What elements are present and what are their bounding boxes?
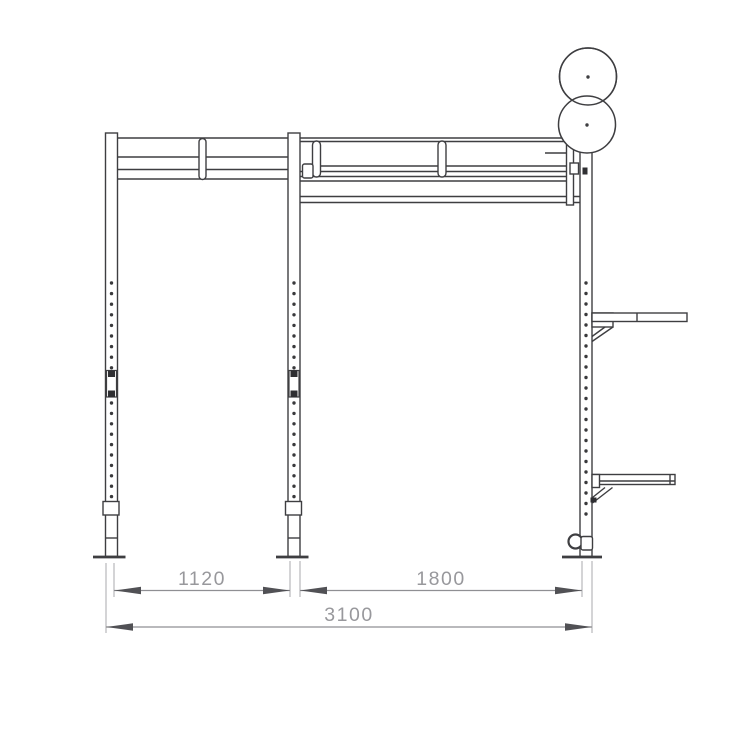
adjustment-hole [110, 313, 113, 316]
adjustment-hole [292, 422, 295, 425]
adjustment-hole [110, 495, 113, 498]
adjustment-hole [292, 313, 295, 316]
adjustment-hole [292, 345, 295, 348]
adjustment-hole [110, 366, 113, 369]
upper-shelf [592, 313, 687, 342]
adjustment-hole [584, 323, 587, 326]
adjustment-hole [292, 453, 295, 456]
beam-end-bracket-cap [570, 163, 579, 174]
adjustment-hole [584, 334, 587, 337]
adjustment-hole [584, 418, 587, 421]
adjustment-hole [584, 355, 587, 358]
adjustment-hole [584, 470, 587, 473]
adjustment-hole [292, 412, 295, 415]
adjustment-hole [292, 433, 295, 436]
adjustment-hole [110, 433, 113, 436]
ball-targets [559, 48, 617, 153]
adjustment-hole [584, 460, 587, 463]
adjustment-hole [584, 428, 587, 431]
adjustment-hole [110, 324, 113, 327]
adjustment-hole [292, 366, 295, 369]
right-bay-muscleup-bar [300, 166, 571, 181]
adjustment-hole [110, 443, 113, 446]
adjustment-hole [110, 345, 113, 348]
drawing-canvas: 1120 1800 3100 [0, 0, 750, 749]
bar-clamp-mid-post [303, 164, 314, 178]
adjustment-hole [292, 324, 295, 327]
adjustment-hole [584, 376, 587, 379]
adjustment-hole [110, 474, 113, 477]
adjustment-hole [584, 313, 587, 316]
adjustment-hole [584, 344, 587, 347]
dimension-label-1800: 1800 [416, 568, 465, 590]
middle-upright-collar [286, 502, 302, 516]
adjustment-hole [292, 292, 295, 295]
adjustment-hole [110, 281, 113, 284]
rig-technical-drawing: 1120 1800 3100 [0, 0, 750, 749]
middle-upright [286, 133, 302, 557]
ball-target-lower-center-dot [585, 123, 588, 126]
right-bay-bottom-beam [300, 197, 580, 203]
adjustment-hole [292, 485, 295, 488]
dimension-left-bay: 1120 [114, 568, 290, 594]
adjustment-hole [584, 386, 587, 389]
adjustment-hole [292, 281, 295, 284]
adjustment-hole [584, 502, 587, 505]
adjustment-hole [292, 464, 295, 467]
adjustment-hole [292, 356, 295, 359]
adjustment-hole [584, 449, 587, 452]
lower-shelf [591, 475, 676, 504]
adjustment-hole [584, 481, 587, 484]
adjustment-hole [292, 334, 295, 337]
dimension-label-1120: 1120 [178, 568, 226, 590]
left-bay-strut [199, 139, 206, 180]
adjustment-hole [584, 512, 587, 515]
left-upright-collar [103, 502, 119, 516]
dimension-right-bay: 1800 [300, 568, 582, 594]
left-upright [103, 133, 119, 557]
adjustment-hole [584, 281, 587, 284]
adjustment-hole [110, 356, 113, 359]
adjustment-hole [110, 485, 113, 488]
adjustment-hole [292, 401, 295, 404]
adjustment-hole [292, 474, 295, 477]
adjustment-hole [584, 491, 587, 494]
adjustment-hole [292, 303, 295, 306]
ball-target-upper-center-dot [586, 75, 589, 78]
adjustment-hole [110, 412, 113, 415]
adjustment-hole [110, 303, 113, 306]
adjustment-hole [292, 495, 295, 498]
adjustment-hole [292, 443, 295, 446]
adjustment-hole [110, 334, 113, 337]
top-beam [118, 138, 567, 157]
right-upright [580, 148, 592, 557]
adjustment-hole [110, 464, 113, 467]
adjustment-hole [584, 365, 587, 368]
adjustment-hole [584, 292, 587, 295]
right-bay-hanger-1 [313, 141, 321, 177]
adjustment-hole [110, 401, 113, 404]
adjustment-hole [110, 422, 113, 425]
band-peg-ring [569, 535, 593, 551]
adjustment-hole [110, 292, 113, 295]
dimension-label-3100: 3100 [324, 604, 373, 626]
adjustment-hole [584, 407, 587, 410]
adjustment-hole [584, 439, 587, 442]
dimension-overall: 3100 [106, 604, 592, 631]
right-bay-hanger-2 [438, 141, 446, 177]
adjustment-hole [584, 397, 587, 400]
adjustment-hole [584, 302, 587, 305]
adjustment-hole [110, 453, 113, 456]
